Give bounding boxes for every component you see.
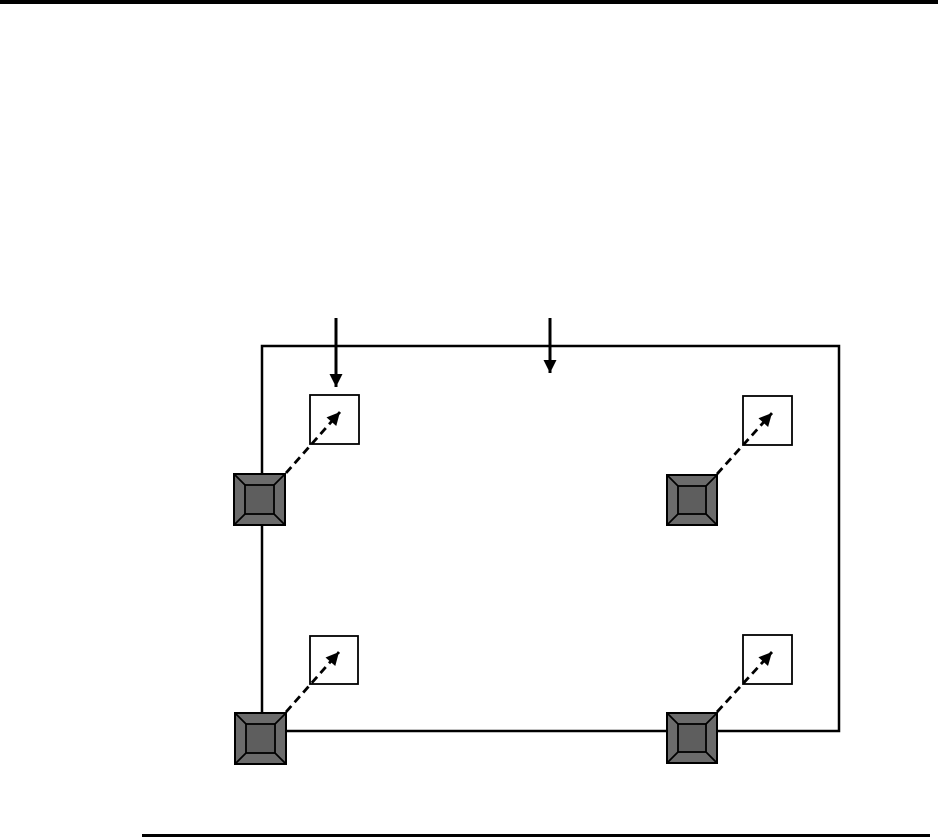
screw-top-face <box>246 724 275 753</box>
guide-square-bottom-right <box>743 635 792 684</box>
screw-head-bottom-right <box>667 713 717 763</box>
screw-top-face <box>678 486 706 514</box>
fastener-group-top-right <box>667 396 792 525</box>
screw-head-bottom-left <box>235 713 286 764</box>
screw-head-top-left <box>234 474 285 525</box>
fastener-group-bottom-right <box>667 635 792 763</box>
page-footer-rule <box>142 834 930 837</box>
fastener-group-bottom-left <box>235 636 358 764</box>
panel-installation-diagram <box>0 0 938 839</box>
guide-square-bottom-left <box>310 636 358 684</box>
fastener-group-top-left <box>234 395 359 525</box>
manual-page <box>0 0 938 839</box>
screw-top-face <box>245 485 274 514</box>
guide-square-top-right <box>743 396 792 445</box>
screw-head-top-right <box>667 475 717 525</box>
screw-top-face <box>678 724 706 752</box>
